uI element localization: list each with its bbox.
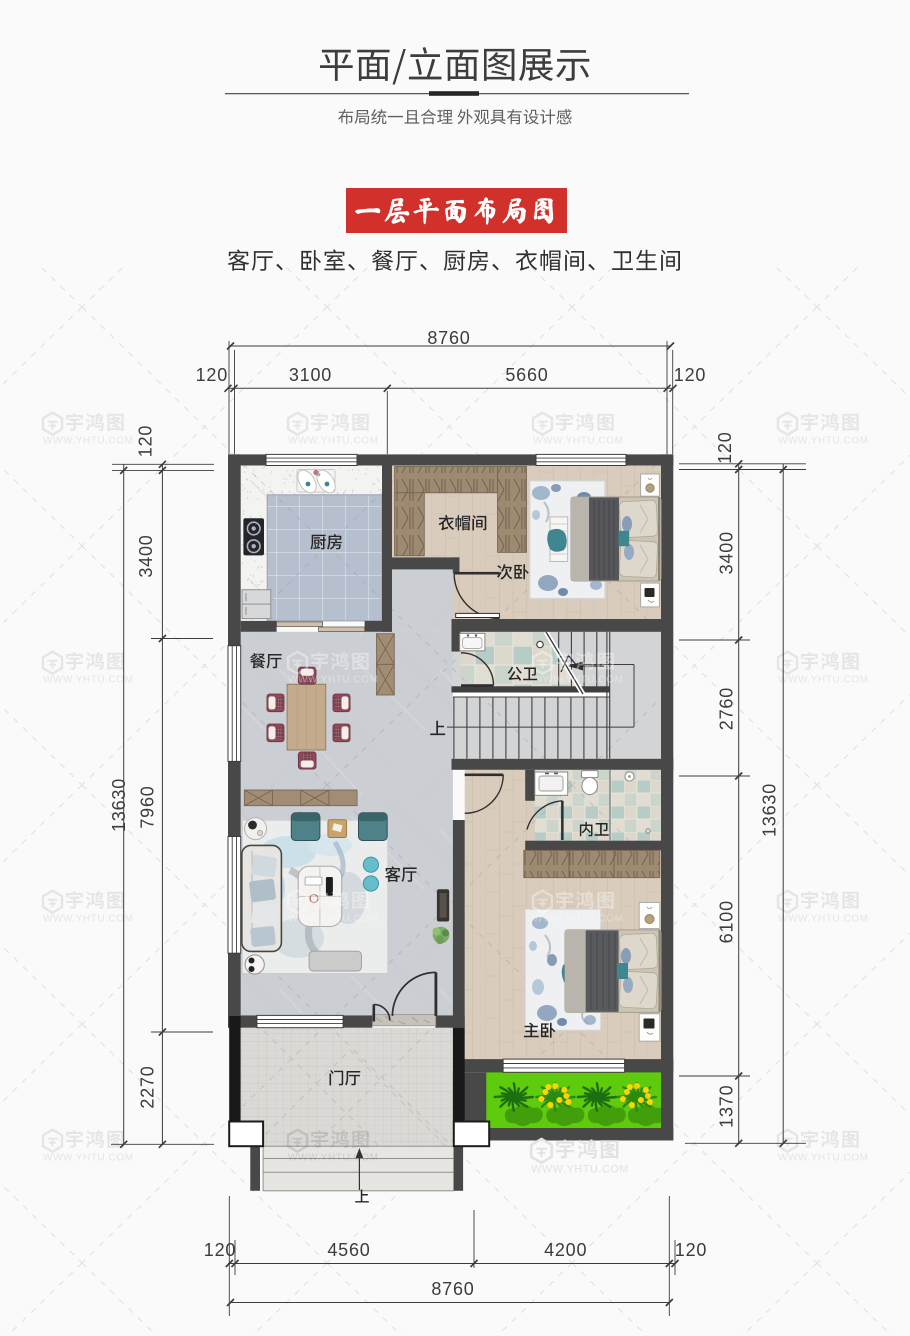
svg-text:2270: 2270 (138, 1065, 158, 1108)
svg-text:7960: 7960 (138, 785, 158, 828)
svg-text:8760: 8760 (427, 328, 470, 348)
svg-text:WWW.YHTU.COM: WWW.YHTU.COM (778, 914, 868, 925)
svg-text:3400: 3400 (136, 534, 156, 577)
svg-text:2760: 2760 (717, 687, 737, 730)
svg-text:120: 120 (675, 1240, 707, 1260)
svg-text:13630: 13630 (109, 778, 129, 832)
svg-text:WWW.YHTU.COM: WWW.YHTU.COM (778, 1153, 868, 1164)
svg-text:WWW.YHTU.COM: WWW.YHTU.COM (531, 1163, 629, 1175)
svg-text:WWW.YHTU.COM: WWW.YHTU.COM (533, 436, 623, 447)
svg-text:4200: 4200 (544, 1240, 587, 1260)
svg-text:120: 120 (715, 431, 735, 463)
svg-text:WWW.YHTU.COM: WWW.YHTU.COM (288, 1153, 378, 1164)
svg-text:120: 120 (674, 365, 706, 385)
svg-text:6100: 6100 (717, 900, 737, 943)
svg-text:1370: 1370 (717, 1085, 737, 1128)
svg-text:WWW.YHTU.COM: WWW.YHTU.COM (43, 675, 133, 686)
svg-text:WWW.YHTU.COM: WWW.YHTU.COM (43, 1153, 133, 1164)
svg-text:WWW.YHTU.COM: WWW.YHTU.COM (778, 436, 868, 447)
svg-text:4560: 4560 (327, 1240, 370, 1260)
svg-text:WWW.YHTU.COM: WWW.YHTU.COM (288, 914, 378, 925)
svg-text:5660: 5660 (505, 365, 548, 385)
svg-text:8760: 8760 (431, 1279, 474, 1299)
svg-text:WWW.YHTU.COM: WWW.YHTU.COM (288, 675, 378, 686)
svg-text:3400: 3400 (717, 531, 737, 574)
svg-text:WWW.YHTU.COM: WWW.YHTU.COM (533, 675, 623, 686)
svg-text:120: 120 (204, 1240, 236, 1260)
svg-text:3100: 3100 (289, 365, 332, 385)
svg-text:120: 120 (196, 365, 228, 385)
svg-text:WWW.YHTU.COM: WWW.YHTU.COM (533, 914, 623, 925)
svg-text:WWW.YHTU.COM: WWW.YHTU.COM (288, 436, 378, 447)
svg-text:120: 120 (136, 425, 156, 457)
svg-text:WWW.YHTU.COM: WWW.YHTU.COM (43, 914, 133, 925)
svg-text:13630: 13630 (760, 783, 780, 837)
svg-text:WWW.YHTU.COM: WWW.YHTU.COM (43, 436, 133, 447)
svg-text:WWW.YHTU.COM: WWW.YHTU.COM (778, 675, 868, 686)
